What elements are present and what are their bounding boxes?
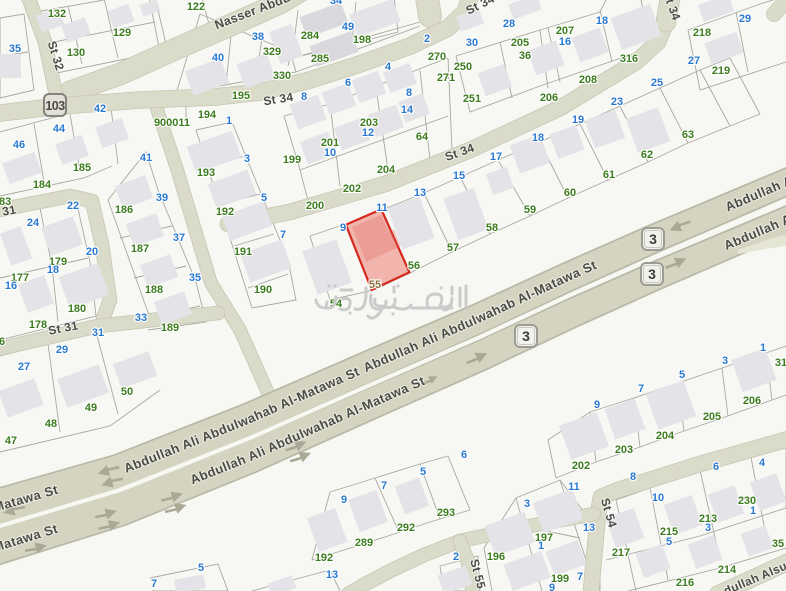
svg-text:3: 3 bbox=[649, 231, 657, 247]
svg-text:192: 192 bbox=[315, 552, 333, 564]
svg-text:29: 29 bbox=[56, 344, 68, 356]
svg-text:6: 6 bbox=[345, 77, 351, 89]
svg-text:200: 200 bbox=[306, 200, 324, 212]
svg-text:285: 285 bbox=[311, 53, 329, 65]
svg-text:204: 204 bbox=[377, 164, 396, 176]
svg-text:198: 198 bbox=[353, 34, 371, 46]
svg-text:7: 7 bbox=[280, 229, 286, 241]
svg-text:251: 251 bbox=[463, 93, 481, 105]
svg-text:23: 23 bbox=[611, 96, 623, 108]
svg-text:1: 1 bbox=[750, 505, 756, 517]
svg-text:19: 19 bbox=[572, 114, 584, 126]
svg-text:7: 7 bbox=[151, 578, 157, 590]
svg-text:129: 129 bbox=[113, 27, 131, 39]
svg-text:24: 24 bbox=[27, 217, 40, 229]
svg-text:35: 35 bbox=[772, 538, 784, 550]
svg-text:47: 47 bbox=[5, 435, 17, 447]
svg-text:2: 2 bbox=[424, 33, 430, 45]
svg-text:16: 16 bbox=[5, 280, 17, 292]
svg-text:25: 25 bbox=[651, 77, 663, 89]
svg-text:57: 57 bbox=[447, 242, 459, 254]
svg-text:6: 6 bbox=[713, 461, 719, 473]
svg-text:7: 7 bbox=[638, 383, 644, 395]
svg-text:9: 9 bbox=[341, 494, 347, 506]
svg-text:3: 3 bbox=[524, 498, 530, 510]
svg-text:208: 208 bbox=[579, 74, 597, 86]
svg-text:189: 189 bbox=[161, 322, 179, 334]
svg-text:27: 27 bbox=[18, 361, 30, 373]
svg-text:13: 13 bbox=[326, 569, 338, 581]
svg-text:191: 191 bbox=[234, 246, 252, 258]
svg-text:61: 61 bbox=[603, 169, 615, 181]
svg-text:284: 284 bbox=[301, 30, 320, 42]
svg-text:204: 204 bbox=[656, 430, 675, 442]
svg-text:190: 190 bbox=[254, 284, 272, 296]
svg-text:9: 9 bbox=[340, 222, 346, 234]
svg-text:293: 293 bbox=[437, 507, 455, 519]
svg-text:250: 250 bbox=[454, 61, 472, 73]
svg-text:56: 56 bbox=[408, 260, 420, 272]
svg-text:130: 130 bbox=[67, 47, 85, 59]
svg-text:180: 180 bbox=[68, 303, 86, 315]
svg-text:48: 48 bbox=[45, 418, 57, 430]
svg-text:199: 199 bbox=[283, 154, 301, 166]
svg-text:3: 3 bbox=[244, 153, 250, 165]
svg-text:17: 17 bbox=[490, 151, 502, 163]
svg-text:29: 29 bbox=[739, 13, 751, 25]
svg-text:5: 5 bbox=[679, 369, 685, 381]
svg-text:64: 64 bbox=[416, 131, 429, 143]
svg-text:900011: 900011 bbox=[154, 117, 190, 129]
svg-text:41: 41 bbox=[140, 152, 152, 164]
svg-text:49: 49 bbox=[85, 402, 97, 414]
svg-text:3: 3 bbox=[522, 328, 530, 344]
svg-text:218: 218 bbox=[693, 27, 711, 39]
svg-text:329: 329 bbox=[263, 46, 281, 58]
svg-text:35: 35 bbox=[189, 272, 201, 284]
svg-text:3: 3 bbox=[722, 355, 728, 367]
svg-text:194: 194 bbox=[198, 109, 217, 121]
svg-text:316: 316 bbox=[620, 53, 638, 65]
svg-text:270: 270 bbox=[428, 51, 446, 63]
svg-text:3: 3 bbox=[705, 522, 711, 534]
svg-text:205: 205 bbox=[703, 411, 721, 423]
svg-text:27: 27 bbox=[688, 55, 700, 67]
svg-text:217: 217 bbox=[612, 547, 630, 559]
svg-text:14: 14 bbox=[401, 104, 414, 116]
svg-text:271: 271 bbox=[437, 72, 455, 84]
svg-text:8: 8 bbox=[630, 471, 636, 483]
svg-text:2: 2 bbox=[453, 551, 459, 563]
svg-text:20: 20 bbox=[86, 246, 98, 258]
svg-text:9: 9 bbox=[594, 399, 600, 411]
svg-text:8: 8 bbox=[406, 87, 412, 99]
svg-text:216: 216 bbox=[676, 577, 694, 589]
svg-text:202: 202 bbox=[572, 460, 590, 472]
svg-text:178: 178 bbox=[29, 319, 47, 331]
svg-text:7: 7 bbox=[577, 571, 583, 583]
svg-text:15: 15 bbox=[453, 170, 465, 182]
svg-text:4: 4 bbox=[759, 457, 766, 469]
svg-text:59: 59 bbox=[524, 204, 536, 216]
svg-text:36: 36 bbox=[519, 50, 531, 62]
svg-text:4: 4 bbox=[385, 61, 392, 73]
svg-text:35: 35 bbox=[9, 43, 21, 55]
svg-text:39: 39 bbox=[156, 192, 168, 204]
svg-text:18: 18 bbox=[47, 264, 59, 276]
svg-text:192: 192 bbox=[216, 206, 234, 218]
svg-text:122: 122 bbox=[187, 1, 205, 13]
svg-text:62: 62 bbox=[641, 149, 653, 161]
svg-text:18: 18 bbox=[596, 15, 608, 27]
svg-text:49: 49 bbox=[342, 21, 354, 33]
svg-text:219: 219 bbox=[712, 65, 730, 77]
svg-text:132: 132 bbox=[48, 8, 66, 20]
svg-text:196: 196 bbox=[487, 551, 505, 563]
svg-text:38: 38 bbox=[252, 31, 264, 43]
svg-text:46: 46 bbox=[13, 139, 25, 151]
svg-text:37: 37 bbox=[173, 232, 185, 244]
svg-text:40: 40 bbox=[212, 52, 224, 64]
svg-text:11: 11 bbox=[376, 202, 388, 214]
svg-text:187: 187 bbox=[131, 243, 149, 255]
svg-text:18: 18 bbox=[532, 132, 544, 144]
svg-text:3: 3 bbox=[648, 266, 656, 282]
svg-text:31: 31 bbox=[92, 327, 104, 339]
svg-text:206: 206 bbox=[743, 395, 761, 407]
svg-text:13: 13 bbox=[414, 187, 426, 199]
svg-text:60: 60 bbox=[564, 187, 576, 199]
svg-text:5: 5 bbox=[261, 192, 267, 204]
svg-text:6: 6 bbox=[0, 336, 5, 348]
svg-text:31: 31 bbox=[775, 357, 786, 369]
svg-text:203: 203 bbox=[615, 444, 633, 456]
svg-text:42: 42 bbox=[94, 103, 106, 115]
svg-text:195: 195 bbox=[232, 90, 250, 102]
svg-text:16: 16 bbox=[559, 36, 571, 48]
svg-text:193: 193 bbox=[197, 167, 215, 179]
svg-text:11: 11 bbox=[568, 481, 580, 493]
svg-text:33: 33 bbox=[135, 312, 147, 324]
svg-text:202: 202 bbox=[343, 183, 361, 195]
svg-text:186: 186 bbox=[115, 204, 133, 216]
svg-text:188: 188 bbox=[145, 284, 163, 296]
svg-text:30: 30 bbox=[466, 37, 478, 49]
svg-text:58: 58 bbox=[486, 222, 498, 234]
svg-text:292: 292 bbox=[397, 522, 415, 534]
svg-text:28: 28 bbox=[503, 18, 515, 30]
svg-text:10: 10 bbox=[652, 492, 664, 504]
svg-text:10: 10 bbox=[324, 147, 336, 159]
svg-text:103: 103 bbox=[45, 99, 65, 113]
svg-text:22: 22 bbox=[67, 200, 79, 212]
svg-text:6: 6 bbox=[461, 449, 467, 461]
svg-text:5: 5 bbox=[420, 466, 426, 478]
svg-text:206: 206 bbox=[540, 92, 558, 104]
svg-text:205: 205 bbox=[511, 37, 529, 49]
svg-text:34: 34 bbox=[330, 0, 343, 7]
svg-text:63: 63 bbox=[682, 129, 694, 141]
svg-text:50: 50 bbox=[121, 386, 133, 398]
svg-text:185: 185 bbox=[73, 162, 91, 174]
svg-text:1: 1 bbox=[538, 540, 544, 552]
svg-text:184: 184 bbox=[33, 179, 52, 191]
svg-text:55: 55 bbox=[369, 279, 381, 291]
svg-text:5: 5 bbox=[198, 562, 204, 574]
svg-text:13: 13 bbox=[583, 522, 595, 534]
svg-text:1: 1 bbox=[226, 115, 232, 127]
svg-text:5: 5 bbox=[666, 536, 672, 548]
svg-text:12: 12 bbox=[362, 127, 374, 139]
svg-text:7: 7 bbox=[381, 480, 387, 492]
svg-text:8: 8 bbox=[301, 91, 307, 103]
svg-text:330: 330 bbox=[273, 70, 291, 82]
svg-text:214: 214 bbox=[718, 564, 737, 576]
svg-text:44: 44 bbox=[53, 123, 66, 135]
svg-text:289: 289 bbox=[355, 537, 373, 549]
svg-text:9: 9 bbox=[549, 582, 555, 591]
svg-text:1: 1 bbox=[760, 342, 766, 354]
